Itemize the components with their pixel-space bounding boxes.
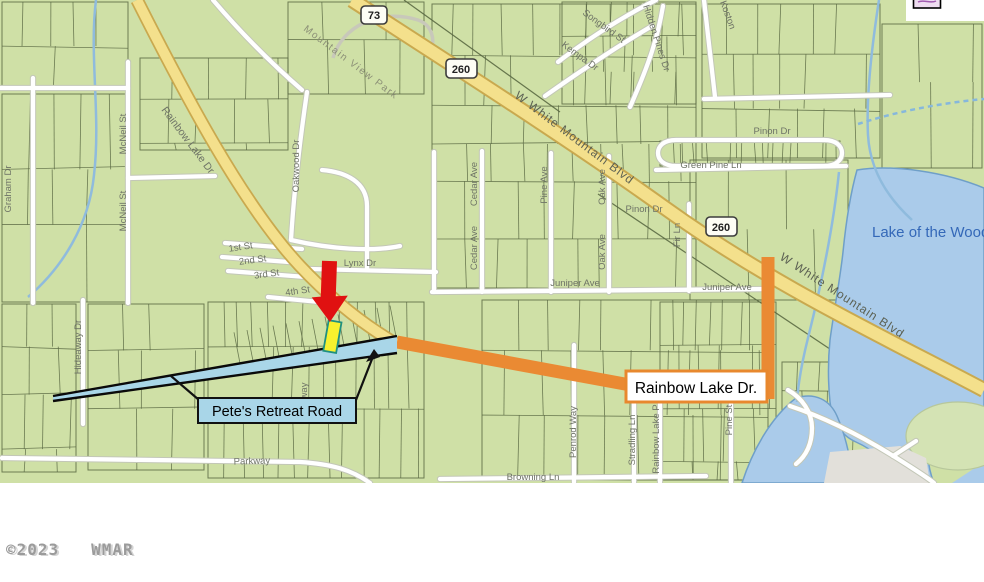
street-label-browning-ln: Browning Ln	[507, 472, 560, 483]
petes-retreat-callout-label: Pete's Retreat Road	[212, 404, 342, 420]
copyright-watermark: ©2023 WMAR	[6, 540, 134, 559]
rainbow-lake-callout: Rainbow Lake Dr.	[626, 371, 767, 402]
street-label-pine-ave: Pine Ave	[539, 166, 550, 203]
street-label-pine-st: Pine St	[724, 404, 735, 435]
street-label-cedar-ave-2: Cedar Ave	[469, 226, 480, 270]
street-label-penrod-way: Penrod Way	[568, 406, 579, 458]
street-label-juniper-ave-2: Juniper Ave	[702, 282, 751, 293]
street-label-oakwood-dr: Oakwood Dr	[291, 140, 302, 193]
street-label-hideaway-dr: Hideaway Dr	[73, 320, 84, 374]
street-label-mcneil-st-2: McNeil St	[118, 190, 129, 231]
map-image: Mountain View Park W White Mountain Blvd…	[0, 0, 984, 582]
street-label-rainbow-lake-p: Rainbow Lake P	[651, 404, 662, 473]
street-label-oak-ave-2: Oak Ave	[597, 234, 608, 270]
rainbow-lake-callout-label: Rainbow Lake Dr.	[635, 380, 757, 397]
street-label-juniper-ave-1: Juniper Ave	[550, 278, 599, 289]
street-label-green-pine-ln: Green Pine Ln	[680, 160, 741, 171]
petes-retreat-callout: Pete's Retreat Road	[198, 398, 356, 423]
street-label-stradling-ln: Stradling Ln	[627, 415, 638, 466]
corner-overlay	[906, 0, 984, 21]
street-label-lynx-dr: Lynx Dr	[344, 258, 376, 269]
thumbnail-content	[918, 1, 936, 2]
hwy-260-shield-north-label: 260	[452, 64, 470, 76]
street-label-fir-ln: Fir Ln	[672, 223, 683, 247]
street-label-pinon-dr-2: Pinon Dr	[626, 204, 663, 215]
street-label-pinon-dr-1: Pinon Dr	[754, 126, 791, 137]
street-label-cedar-ave-1: Cedar Ave	[469, 162, 480, 206]
hwy-73-shield-label: 73	[368, 10, 380, 22]
street-label-oak-ave-1: Oak Ave	[597, 169, 608, 205]
hwy-260-shield-south-label: 260	[712, 222, 730, 234]
street-label-parkway: Parkway	[234, 455, 271, 467]
map-canvas: Mountain View Park W White Mountain Blvd…	[0, 0, 984, 483]
street-label-mcneil-st-1: McNeil St	[118, 113, 129, 154]
street-label-graham-dr: Graham Dr	[3, 166, 14, 213]
lake-label: Lake of the Woods	[872, 224, 984, 241]
